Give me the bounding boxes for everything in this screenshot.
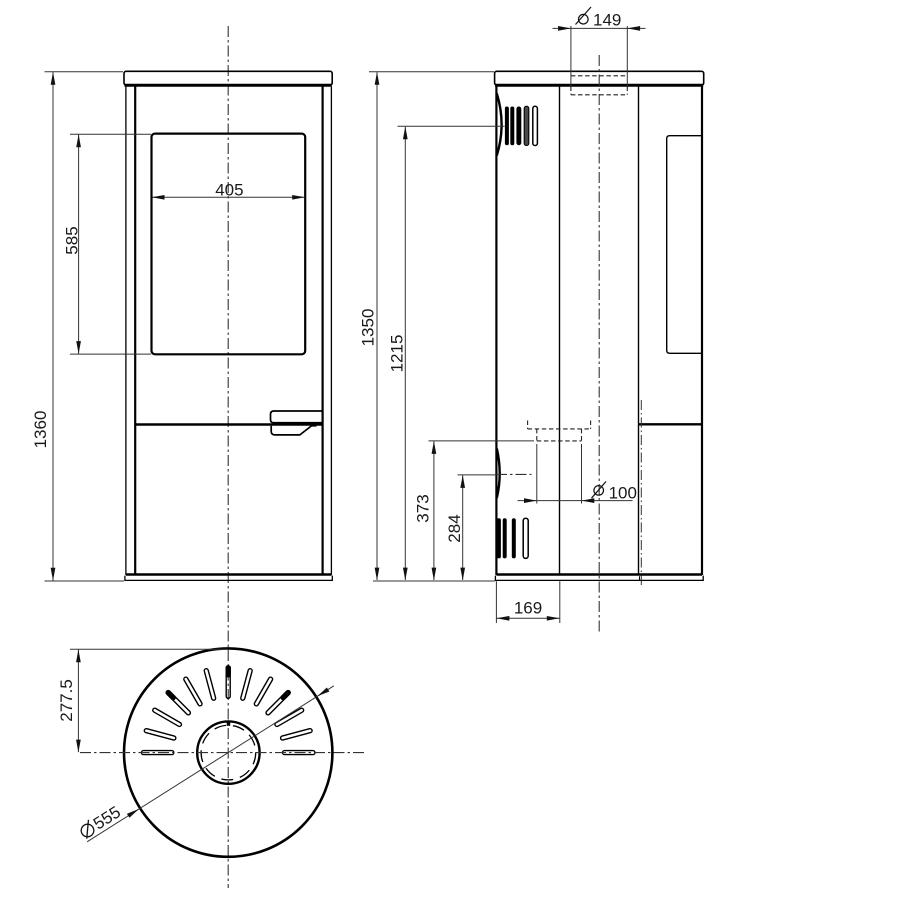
svg-text:1350: 1350 bbox=[359, 309, 378, 347]
svg-text:277.5: 277.5 bbox=[57, 679, 76, 722]
svg-text:373: 373 bbox=[414, 494, 433, 522]
svg-text:585: 585 bbox=[63, 226, 82, 254]
svg-text:149: 149 bbox=[593, 10, 621, 29]
svg-text:284: 284 bbox=[445, 514, 464, 542]
svg-text:1360: 1360 bbox=[31, 411, 50, 449]
svg-text:100: 100 bbox=[609, 484, 637, 503]
svg-text:1215: 1215 bbox=[388, 335, 407, 373]
svg-text:405: 405 bbox=[215, 180, 243, 199]
svg-text:169: 169 bbox=[514, 599, 542, 618]
